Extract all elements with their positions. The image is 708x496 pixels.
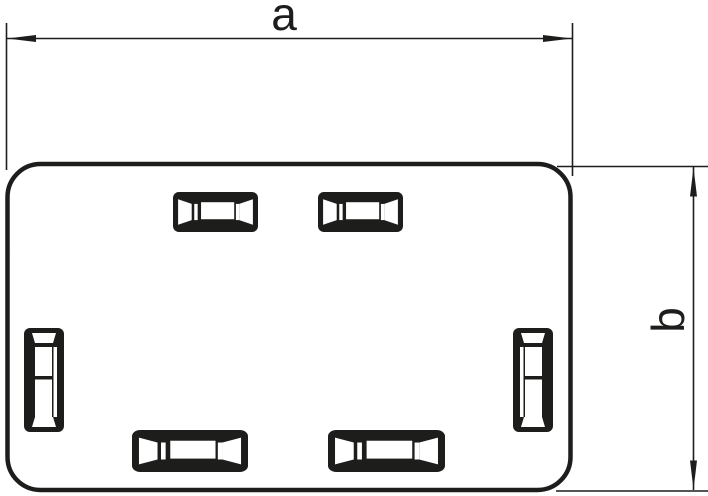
slot-bottom-left [132, 430, 248, 472]
cover-body-outline [8, 164, 571, 490]
slot-right-side [513, 328, 553, 432]
slot-left-side [24, 328, 64, 432]
slot-top-right [318, 192, 403, 232]
slot-top-left [173, 192, 258, 232]
dimension-b-label: b [642, 307, 694, 333]
dim-b-arrow-bottom [690, 461, 697, 490]
dimension-a-label: a [271, 0, 297, 40]
slot-right-side-mirror [513, 328, 553, 432]
technical-drawing: a b [0, 0, 708, 496]
dimension-b: b [556, 167, 708, 492]
dim-b-arrow-top [690, 168, 697, 197]
dim-a-arrow-left [7, 35, 36, 42]
dim-a-arrow-right [543, 35, 572, 42]
drawing-canvas: a b [0, 0, 708, 496]
dimension-a: a [7, 0, 573, 176]
slot-bottom-right [328, 430, 445, 472]
